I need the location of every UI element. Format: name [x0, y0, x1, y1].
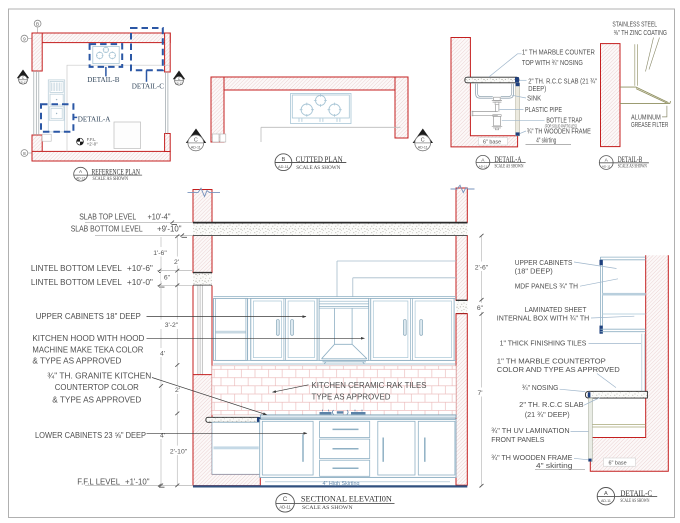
svg-text:⅜" TH ZINC COATING: ⅜" TH ZINC COATING: [614, 30, 667, 37]
svg-text:6": 6": [477, 305, 484, 312]
svg-text:C: C: [421, 137, 425, 143]
svg-text:2" TH. R.C.C SLAB: 2" TH. R.C.C SLAB: [519, 400, 584, 409]
svg-text:SINK: SINK: [527, 95, 541, 102]
svg-text:+2'-0": +2'-0": [87, 142, 98, 147]
svg-text:AD-11: AD-11: [601, 499, 611, 503]
svg-text:LOWER CABINETS 23 ⅝" DEEP: LOWER CABINETS 23 ⅝" DEEP: [35, 431, 146, 440]
svg-text:AD-12: AD-12: [19, 80, 27, 84]
svg-text:DETAIL-C: DETAIL-C: [132, 83, 164, 91]
svg-text:FRONT PANELS: FRONT PANELS: [491, 435, 544, 444]
svg-text:AD-11: AD-11: [418, 145, 428, 149]
svg-text:DETAIL-A: DETAIL-A: [78, 116, 111, 124]
svg-text:GREASE FILTER: GREASE FILTER: [631, 122, 668, 129]
svg-text:7': 7': [477, 390, 482, 397]
svg-text:C: C: [194, 137, 198, 143]
svg-text:TOP WITH ¾" NOSING: TOP WITH ¾" NOSING: [522, 60, 583, 67]
svg-text:+9'-10": +9'-10": [157, 224, 182, 233]
svg-text:¾" TH WOODEN FRAME: ¾" TH WOODEN FRAME: [527, 128, 591, 135]
svg-text:SCALE AS SHOWN: SCALE AS SHOWN: [93, 177, 129, 182]
svg-text:INTERNAL BOX WITH ¾" TH: INTERNAL BOX WITH ¾" TH: [497, 314, 589, 323]
svg-text:MDF PANELS ¾" TH: MDF PANELS ¾" TH: [515, 282, 578, 291]
svg-text:SLAB BOTTOM LEVEL: SLAB BOTTOM LEVEL: [71, 224, 144, 233]
svg-text:1" TH MARBLE COUNTER: 1" TH MARBLE COUNTER: [522, 49, 595, 56]
svg-text:4" High Skirting: 4" High Skirting: [323, 481, 360, 487]
svg-text:DEEP): DEEP): [528, 86, 546, 93]
svg-text:AD-11: AD-11: [479, 164, 488, 168]
svg-text:4" skirting: 4" skirting: [536, 138, 556, 145]
svg-text:SCALE AS SHOWN: SCALE AS SHOWN: [296, 166, 341, 171]
svg-text:ALUMINUM: ALUMINUM: [631, 114, 661, 121]
svg-text:LINTEL BOTTOM LEVEL: LINTEL BOTTOM LEVEL: [31, 264, 123, 273]
svg-text:3'-2": 3'-2": [165, 322, 179, 329]
svg-text:4': 4': [160, 350, 165, 357]
svg-text:A: A: [604, 491, 608, 497]
svg-text:C: C: [283, 496, 288, 503]
svg-text:SCALE AS SHOWN: SCALE AS SHOWN: [620, 499, 649, 504]
svg-text:AD-11: AD-11: [602, 165, 611, 169]
svg-text:8: 8: [23, 151, 26, 156]
svg-text:STAINLESS STEEL: STAINLESS STEEL: [612, 22, 657, 29]
svg-text:SCALE AS SHOWN: SCALE AS SHOWN: [618, 165, 647, 170]
svg-text:+1'-10": +1'-10": [125, 478, 150, 487]
svg-text:AD-11: AD-11: [191, 145, 201, 149]
svg-text:UPPER CABINETS 18" DEEP: UPPER CABINETS 18" DEEP: [36, 312, 141, 321]
svg-text:SCALE AS SHOWN: SCALE AS SHOWN: [495, 164, 524, 169]
svg-text:& TYPE AS APPROVED: & TYPE AS APPROVED: [52, 395, 141, 404]
svg-text:SLAB TOP LEVEL: SLAB TOP LEVEL: [79, 212, 137, 221]
svg-text:(18" DEEP): (18" DEEP): [515, 266, 553, 275]
svg-text:TYPE AS APPROVED: TYPE AS APPROVED: [312, 393, 391, 402]
svg-text:6" base: 6" base: [609, 460, 627, 466]
svg-text:C: C: [22, 76, 25, 80]
svg-text:1" THICK FINISHING TILES: 1" THICK FINISHING TILES: [500, 339, 587, 348]
svg-text:DETAIL-A: DETAIL-A: [495, 154, 523, 164]
svg-text:2" TH. R.C.C SLAB (21 ¾": 2" TH. R.C.C SLAB (21 ¾": [528, 79, 597, 86]
svg-text:6": 6": [164, 274, 171, 281]
svg-text:+10'-6": +10'-6": [127, 264, 153, 273]
svg-text:KITCHEN HOOD WITH HOOD: KITCHEN HOOD WITH HOOD: [32, 334, 144, 343]
svg-text:DETAIL-B: DETAIL-B: [87, 76, 119, 84]
svg-text:MACHINE MAKE TEKA COLOR: MACHINE MAKE TEKA COLOR: [32, 345, 143, 354]
svg-text:COLOR AND TYPE AS APPROVED: COLOR AND TYPE AS APPROVED: [497, 365, 620, 374]
svg-text:¾" NOSING: ¾" NOSING: [522, 383, 559, 392]
svg-text:AD-12: AD-12: [175, 81, 183, 85]
svg-text:SECTIONAL ELEVATI0N: SECTIONAL ELEVATI0N: [301, 494, 393, 504]
svg-text:C: C: [178, 77, 181, 81]
svg-text:2': 2': [175, 387, 180, 394]
svg-text:2'-6": 2'-6": [475, 264, 489, 271]
svg-text:2': 2': [174, 259, 179, 266]
svg-text:COUNTERTOP COLOR: COUNTERTOP COLOR: [55, 383, 139, 392]
svg-text:F.F.L LEVEL: F.F.L LEVEL: [77, 478, 121, 487]
svg-text:PLASTIC PIPE: PLASTIC PIPE: [525, 107, 562, 114]
svg-text:DETAIL-B: DETAIL-B: [618, 154, 643, 164]
svg-text:LINTEL BOTTOM LEVEL: LINTEL BOTTOM LEVEL: [31, 278, 123, 287]
svg-text:+10'-0": +10'-0": [127, 278, 153, 287]
svg-text:B: B: [36, 22, 39, 27]
svg-text:SCALE AS SHOWN: SCALE AS SHOWN: [302, 506, 353, 511]
svg-text:AD-12: AD-12: [76, 177, 85, 181]
svg-text:B: B: [281, 157, 285, 163]
svg-text:CUTTED PLAN: CUTTED PLAN: [296, 154, 344, 164]
svg-text:1'-6": 1'-6": [153, 250, 167, 257]
svg-text:AD-11: AD-11: [278, 164, 289, 169]
svg-text:+10'-4": +10'-4": [148, 212, 171, 221]
svg-text:6" base: 6" base: [483, 139, 501, 145]
svg-text:DETAIL-C: DETAIL-C: [620, 488, 652, 498]
svg-text:9: 9: [23, 37, 26, 42]
svg-text:4" skirting: 4" skirting: [536, 461, 572, 470]
svg-text:KITCHEN CERAMIC RAK TILES: KITCHEN CERAMIC RAK TILES: [312, 381, 427, 390]
svg-text:(21 ¾" DEEP): (21 ¾" DEEP): [525, 410, 570, 419]
svg-text:& TYPE AS APPROVED: & TYPE AS APPROVED: [32, 357, 121, 366]
svg-text:¾" TH. GRANITE KITCHEN: ¾" TH. GRANITE KITCHEN: [47, 371, 151, 380]
svg-text:AD-11: AD-11: [279, 505, 291, 510]
svg-text:2'-10": 2'-10": [170, 448, 188, 455]
